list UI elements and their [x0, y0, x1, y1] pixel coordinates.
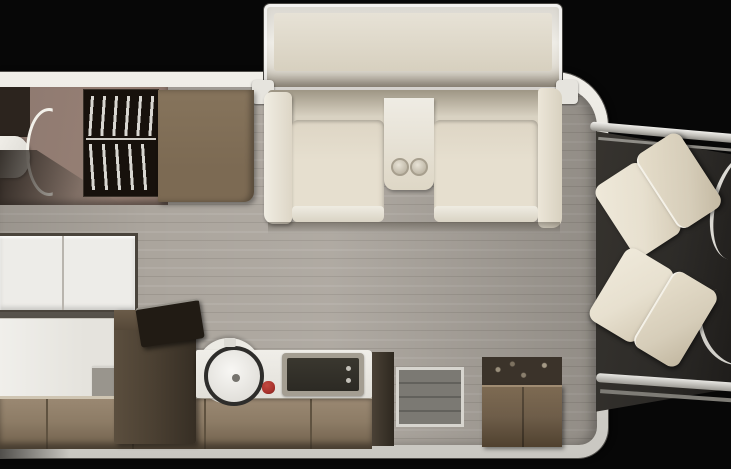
- closet-rod: [86, 138, 156, 140]
- cabinet-end-divider: [372, 352, 394, 446]
- cupholder-icon: [391, 158, 409, 176]
- wardrobe-closet: [84, 90, 158, 196]
- entry-cabinet-top: [482, 357, 562, 385]
- cooktop-surface: [287, 358, 359, 391]
- hanging-clothes: [88, 96, 154, 136]
- cooktop-knob-icon: [346, 366, 351, 371]
- red-knob-icon: [262, 381, 275, 394]
- bed-cushion-seam: [62, 236, 64, 310]
- bathroom-area: [0, 87, 168, 205]
- bed-upper: [0, 233, 138, 313]
- sofa-end-panel: [538, 88, 562, 228]
- cabinet-counter-panel: [158, 90, 254, 202]
- slideout-inner-panel: [274, 13, 552, 71]
- bathroom-corner-cabinet: [0, 87, 30, 137]
- entry-step-mat: [396, 367, 464, 427]
- sofa-slideout: [264, 4, 562, 90]
- sofa-cushion-left: [292, 120, 384, 222]
- round-sink: [204, 346, 264, 406]
- cooktop-knob-icon: [346, 378, 351, 383]
- sofa-floor-shadow: [268, 222, 560, 234]
- sofa-center-console: [384, 98, 434, 190]
- nightstand-step: [92, 366, 114, 396]
- cooktop: [282, 353, 364, 396]
- sofa-cushion-right: [434, 120, 538, 222]
- hanging-clothes: [88, 144, 154, 190]
- faucet-icon: [224, 338, 236, 347]
- sofa-arm-left: [264, 92, 292, 224]
- rv-floorplan-scene: [0, 0, 731, 469]
- cupholder-icon: [410, 158, 428, 176]
- entry-cabinet: [482, 385, 562, 447]
- sink-drain-icon: [232, 374, 240, 382]
